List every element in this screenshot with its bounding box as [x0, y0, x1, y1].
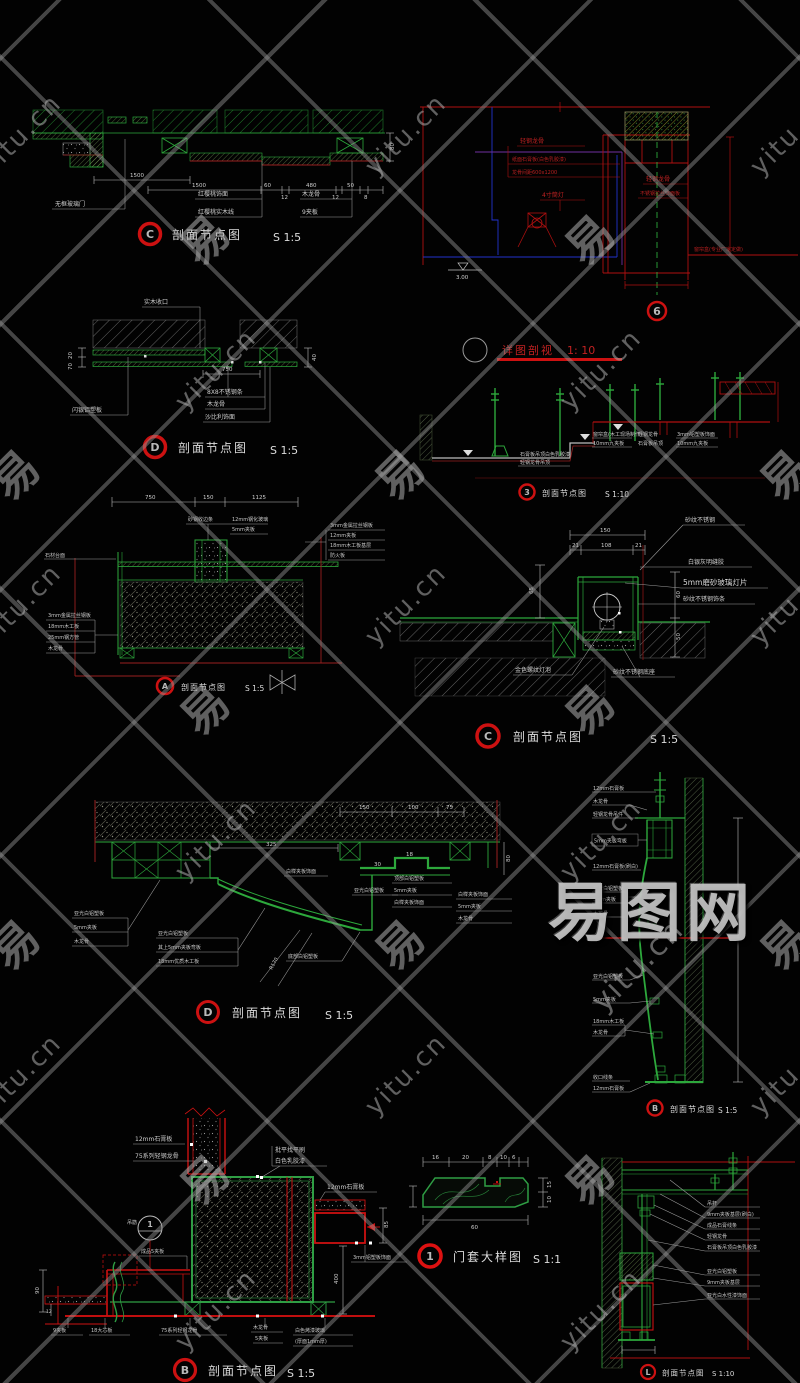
right-frame [340, 842, 488, 875]
door-frame-profile [423, 1178, 528, 1207]
material-label: 亚光白铝塑板 [707, 1268, 737, 1275]
detail-title: A 剖面节点图 S 1:5 [157, 678, 264, 694]
material-label: 12mm钢化玻璃 [232, 516, 268, 523]
material-label: 亚光白铝塑板 [354, 887, 384, 894]
material-label: 5mm夹板 [394, 887, 417, 894]
detail-title: B 剖面节点图 S 1:5 [648, 1101, 738, 1116]
dim-text: 750 [222, 367, 233, 373]
detail-tag: D [150, 441, 159, 454]
material-label: 红樱桃实木线 [198, 208, 234, 216]
material-label: 木龙骨 [302, 190, 320, 198]
material-label: 砂钢收边条 [188, 516, 213, 523]
dim-text: 8 [488, 1155, 492, 1161]
detail-title: 3 剖面节点图 S 1:10 [520, 485, 630, 500]
dim-text: 21 [635, 543, 642, 549]
material-label: 10mm九夹板 [677, 440, 708, 447]
dim-text: 12 [46, 1309, 52, 1315]
detail-title: L 剖面节点图 S 1:10 [641, 1365, 734, 1379]
bulb-symbol [592, 592, 622, 634]
detail-title-text: 剖面节点图 [670, 1104, 715, 1114]
detail-scale: S 1:5 [245, 684, 264, 693]
material-label: 10mm九夹板 [593, 440, 624, 447]
material-label: 3mm金属拉丝钢板 [330, 522, 373, 529]
dim-text: 12 [281, 195, 288, 201]
dim-text: 60 [264, 183, 271, 189]
dim-text: 150 [203, 495, 214, 501]
base-line [65, 1302, 375, 1318]
material-label: 红樱桃饰面 [198, 190, 228, 198]
material-label: 白色乳胶漆 [275, 1157, 305, 1165]
material-label: 不锈钢拉丝饰面板 [640, 190, 680, 197]
material-label: 12mm石膏板 [135, 1135, 172, 1143]
material-label: 砂纹不锈钢底座 [613, 668, 655, 676]
material-label: 12mm石膏板 [327, 1183, 364, 1191]
detail-title: C 剖面节点图 S 1:5 [477, 725, 678, 747]
dim-text: 80 [390, 143, 396, 150]
detail-title-text: 门套大样图 [453, 1249, 523, 1264]
detail-title-text: 剖面节点图 [172, 228, 242, 242]
material-label: 砂纹不锈钢饰条 [683, 595, 725, 603]
slab [95, 802, 500, 840]
material-label: 白榉夹板饰面 [286, 868, 316, 875]
dim-text: 21 [572, 543, 579, 549]
material-label: 5mm夹板 [593, 996, 616, 1003]
bowtie-symbol [270, 670, 295, 694]
detail-title-text: 剖面节点图 [181, 682, 226, 692]
material-label: 实木收口 [144, 298, 168, 306]
material-label: 无框玻璃门 [55, 200, 85, 208]
material-label: 18mm木工板 [48, 623, 79, 630]
material-label: 9夹板 [302, 208, 318, 216]
dim-text: 1500 [130, 173, 144, 179]
detail-title-text: 剖面节点图 [208, 1364, 278, 1378]
material-labels: 窗帘盒(木工现场制作) 10mm九夹板 轻钢龙骨 石膏板吊顶 3mm铝塑板饰面 … [518, 431, 718, 466]
material-label: 沙比利饰面 [205, 413, 235, 421]
slab-hatch [33, 110, 383, 133]
material-label: 3mm铝塑板饰面 [677, 431, 715, 438]
wall-framing [618, 1194, 655, 1340]
material-label: 木龙骨 [593, 910, 608, 917]
detail-title-text: 剖面节点图 [662, 1368, 705, 1378]
dim-text: 12 [332, 195, 339, 201]
material-label: 纸面石膏板(白色乳胶漆) [512, 156, 566, 163]
curved-panel [210, 875, 372, 930]
material-label: 4寸筒灯 [542, 191, 564, 199]
detail-tag: 1 [426, 1250, 434, 1263]
view-title-text: 详图剖视 [502, 343, 554, 357]
light-niche [578, 577, 638, 650]
column-block [192, 1175, 313, 1302]
material-label: 批平找平刷 [275, 1146, 305, 1154]
right-assembly [315, 1200, 380, 1245]
detail-title-text: 剖面节点图 [232, 1006, 302, 1020]
material-label: 轻钢龙骨吊件 [593, 811, 623, 818]
detail-a-mid: 750 150 1125 石材台面 3mm金属拉丝钢板 18mm木工板 25mm… [40, 490, 400, 714]
detail-d-big: 150 100 75 325 30 18 80 亚光白铝塑板 5mm夹板 [60, 780, 520, 1046]
material-label: 轻钢龙骨 [707, 1233, 727, 1240]
dim-text: 50 [347, 183, 354, 189]
material-label: 18mm优质木工板 [158, 958, 199, 965]
material-label: 3mm铝塑板饰面 [353, 1254, 391, 1261]
detail-b-bottom: 1 吊筋 90 12 400 85 12mm石膏板 75系列轻钢龙骨 批平找平刷… [35, 1100, 415, 1383]
material-label: 木龙骨 [48, 645, 63, 652]
material-label: 木龙骨 [593, 798, 608, 805]
material-label: 石材台面 [45, 552, 65, 559]
material-label: 75系列轻钢龙骨 [161, 1327, 197, 1334]
material-label: 9mm夹板基层(刷白) [707, 1211, 754, 1218]
dim-line [622, 1346, 655, 1354]
dim-text: 1125 [252, 495, 266, 501]
material-label: 收口线条 [593, 1074, 613, 1081]
dim-text: 75 [446, 805, 453, 811]
cad-sheet: 1500 1500 60 12 480 12 50 8 80 无框玻璃门 红樱桃… [0, 0, 800, 1383]
material-label: 吊筋 [127, 1219, 137, 1226]
material-label: 5夹板 [255, 1335, 268, 1342]
material-label: 75系列轻钢龙骨 [135, 1152, 179, 1160]
dim-text: 15 [547, 1181, 553, 1188]
material-label: 木龙骨 [458, 915, 473, 922]
detail-d-top: 20 70 750 40 实木收口 8X8不锈钢条 木龙骨 沙比利饰面 闪银铝塑… [60, 290, 380, 469]
dim-text: 60 [471, 1225, 478, 1231]
detail-title: C 剖面节点图 S 1:5 [140, 224, 302, 245]
detail-title: B 剖面节点图 S 1:5 [175, 1360, 316, 1381]
downlight-symbol [518, 213, 556, 247]
material-label: 成品石膏线条 [707, 1222, 737, 1229]
dim-text: 65 [529, 587, 535, 594]
dim-text: 108 [601, 543, 612, 549]
detail-tag: 3 [524, 488, 530, 497]
detail-scale: S 1:5 [718, 1106, 737, 1115]
detail-l-bottom: 吊杆 9mm夹板基层(刷白) 成品石膏线条 轻钢龙骨 石膏板吊顶白色乳胶漆 亚光… [600, 1150, 800, 1383]
material-label: 白榉夹板饰面 [394, 899, 424, 906]
dim-text: 50 [676, 633, 682, 640]
detail-scale: S 1:5 [287, 1367, 315, 1380]
dimensions: 1500 1500 60 12 480 12 50 8 80 [94, 133, 396, 201]
material-label: 顶部白铝塑板 [394, 875, 424, 882]
dim-text: 8 [364, 195, 368, 201]
detail-title-text: 剖面节点图 [513, 730, 583, 744]
material-label: 18mm木工板 [593, 1018, 624, 1025]
detail-tag: C [146, 228, 154, 241]
detail-c-top: 1500 1500 60 12 480 12 50 8 80 无框玻璃门 红樱桃… [30, 95, 400, 259]
material-label: 金色螺纹灯泡 [515, 666, 551, 674]
dim-text: 150 [359, 805, 370, 811]
detail-b-tall: 12mm石膏板 木龙骨 轻钢龙骨吊件 5mm夹板弯板 12mm石膏板(刷白) 亚… [590, 770, 800, 1126]
dim-text: 325 [266, 842, 277, 848]
dim-text: 16 [432, 1155, 439, 1161]
material-label: 轻钢龙骨 [520, 137, 544, 145]
blue-lines [423, 107, 617, 257]
material-label: 白银灰明缝胶 [688, 558, 724, 566]
detail-scale: S 1:5 [325, 1009, 353, 1022]
veneer-strips [190, 153, 383, 165]
dim-text: 10 [547, 1196, 553, 1203]
material-labels: 亚光白铝塑板 5mm夹板 木龙骨 亚光白铝塑板 其上5mm夹板弯板 18mm优质… [72, 868, 512, 986]
slab-hatch-block [625, 112, 688, 140]
watermark-glyph: 易 [0, 903, 53, 982]
detail-1-door: 16 20 8 10 6 60 15 10 1 门套大样图 S 1:1 [405, 1140, 625, 1284]
keel-x-box [162, 138, 363, 153]
detail-scale: S 1:5 [273, 231, 301, 244]
dim-text: 400 [334, 1273, 340, 1284]
floor-structure [400, 618, 710, 696]
material-label: 轻钢龙骨吊顶 [520, 459, 550, 466]
material-label: 12mm石膏板 [593, 785, 624, 792]
ceiling-framing [622, 1152, 748, 1194]
material-label: 木龙骨 [74, 938, 89, 945]
elevation-text: 3.00 [456, 275, 469, 281]
elevation-marker: 3.00 [448, 263, 482, 281]
material-label: 白榉夹板饰面 [458, 891, 488, 898]
ceiling-panels [93, 348, 297, 367]
material-label: 8X8不锈钢条 [207, 388, 243, 396]
material-label: 防火板 [330, 552, 345, 559]
red-labels: 轻钢龙骨 纸面石膏板(白色乳胶漆) 龙骨间距600x1200 4寸筒灯 轻钢龙骨… [508, 137, 743, 253]
left-frame [112, 842, 210, 878]
material-label: 18大芯板 [91, 1327, 112, 1334]
dim-text: 20 [68, 352, 74, 359]
dim-text: 70 [68, 363, 74, 370]
dim-text: 40 [312, 354, 318, 361]
detail-tag: B [181, 1364, 189, 1377]
dim-text: 100 [408, 805, 419, 811]
material-label: 12mm石膏板 [593, 1085, 624, 1092]
detail-scale: S 1:5 [270, 444, 298, 457]
red-dim [625, 137, 734, 289]
material-label: 木龙骨 [593, 1029, 608, 1036]
dim-text: 750 [145, 495, 156, 501]
detail-scale: S 1:5 [650, 733, 678, 746]
dimensions: 750 150 1125 [112, 495, 298, 507]
detail-tag: 6 [653, 305, 661, 318]
material-label: 石膏板吊顶白色乳胶漆 [520, 451, 570, 458]
detail-3-mid: 窗帘盒(木工现场制作) 10mm九夹板 轻钢龙骨 石膏板吊顶 3mm铝塑板饰面 … [420, 360, 800, 512]
detail-6: 3.00 轻钢龙骨 纸面石膏板(白色乳胶漆) 龙骨间距600x1200 4寸筒灯… [420, 95, 800, 339]
detail-title-text: 剖面节点图 [542, 488, 587, 498]
material-label: 成品5夹板 [141, 1248, 164, 1255]
dim-text: 10 [500, 1155, 507, 1161]
material-label: 9mm夹板基层 [707, 1279, 740, 1286]
material-label: 亚光白铝塑板 [74, 910, 104, 917]
material-labels: 实木收口 8X8不锈钢条 木龙骨 沙比利饰面 闪银铝塑板 [70, 298, 270, 422]
detail-tag: D [203, 1006, 212, 1019]
view-title-scale: 1: 10 [567, 344, 595, 357]
material-label: 25mm钢方管 [48, 634, 79, 641]
material-labels: 吊杆 9mm夹板基层(刷白) 成品石膏线条 轻钢龙骨 石膏板吊顶白色乳胶漆 亚光… [648, 1180, 760, 1305]
stud-channel [185, 1108, 225, 1174]
dim-text: 1500 [192, 183, 206, 189]
material-label: 5mm夹板 [458, 903, 481, 910]
material-label: 石膏板吊顶 [638, 440, 663, 447]
dim-text: 85 [384, 1221, 390, 1228]
material-label: 白色烤漆玻璃 [295, 1327, 325, 1334]
dim-text: 90 [35, 1287, 41, 1294]
hanger-and-box [635, 772, 685, 858]
dim-text: 80 [506, 855, 512, 862]
material-label: 木龙骨 [207, 400, 225, 408]
detail-scale: S 1:10 [712, 1370, 734, 1378]
material-label: 亚光白铝塑板 [158, 930, 188, 937]
dim-text: 20 [462, 1155, 469, 1161]
material-label: 窗帘盒(木工现场制作) [593, 431, 642, 438]
dim-text: 6 [512, 1155, 516, 1161]
ceiling-profile [432, 422, 770, 478]
material-label: 5mm夹板 [593, 896, 616, 903]
dim-text: 480 [306, 183, 317, 189]
material-label: 石膏板吊顶白色乳胶漆 [707, 1244, 757, 1251]
detail-title-text: 剖面节点图 [178, 441, 248, 455]
detail-scale: S 1:10 [605, 490, 629, 499]
door-leaf [103, 1255, 137, 1322]
material-label: 5mm磨砂玻璃灯片 [683, 577, 747, 587]
material-label: 砂纹不锈钢 [685, 516, 715, 524]
detail-tag: C [484, 730, 492, 743]
material-label: 5mm夹板 [74, 924, 97, 931]
detail-title: 1 门套大样图 S 1:1 [419, 1245, 561, 1267]
counter-structure [118, 540, 338, 658]
red-top-box [720, 382, 778, 422]
material-label: 12mm夹板 [330, 532, 356, 539]
detail-title: D 剖面节点图 S 1:5 [198, 1002, 354, 1023]
material-label: 18mm木工板基层 [330, 542, 371, 549]
material-label: 龙骨间距600x1200 [512, 169, 557, 176]
material-label: 木龙骨 [253, 1324, 268, 1331]
material-label: 轻钢龙骨 [646, 175, 670, 183]
detail-tag: A [162, 682, 169, 691]
detail-scale: S 1:1 [533, 1253, 561, 1266]
dim-line [733, 818, 743, 1082]
material-label: 亚光白水性漆饰面 [707, 1292, 747, 1299]
detail-tag: B [652, 1104, 658, 1113]
dim-text: 60 [676, 591, 682, 598]
purple-lines [475, 152, 622, 265]
detail-tag: L [645, 1368, 650, 1377]
material-label: 闪银铝塑板 [72, 406, 102, 414]
detail-title: 6 [648, 302, 666, 320]
material-label: 吊杆 [707, 1200, 717, 1207]
dim-text: 150 [600, 528, 611, 534]
material-label: 亚光白铝塑板 [593, 973, 623, 980]
material-label: 轻钢龙骨 [638, 431, 658, 438]
detail-title: D 剖面节点图 S 1:5 [145, 437, 299, 458]
material-label: 亚光白铝塑板 [593, 885, 623, 892]
material-label: 12mm石膏板(刷白) [593, 863, 638, 870]
material-label: (厚面1mm厚) [295, 1339, 327, 1345]
material-label: 窗帘盒(专业厂家定做) [694, 246, 743, 253]
material-label: 底部白铝塑板 [288, 953, 318, 960]
material-label: 5mm夹板弯板 [594, 838, 627, 845]
detail-c-mid: 150 21 108 21 65 60 50 砂纹不锈钢 白银灰明缝胶 5mm磨… [400, 500, 800, 752]
material-label: 其上5mm夹板弯板 [158, 944, 201, 951]
material-label: 9夹板 [53, 1327, 66, 1334]
material-label: 5mm夹板 [232, 526, 255, 533]
marker-number: 1 [147, 1220, 153, 1229]
detail-marker: 1 吊筋 [127, 1216, 162, 1268]
material-label: 3mm金属拉丝钢板 [48, 612, 91, 619]
